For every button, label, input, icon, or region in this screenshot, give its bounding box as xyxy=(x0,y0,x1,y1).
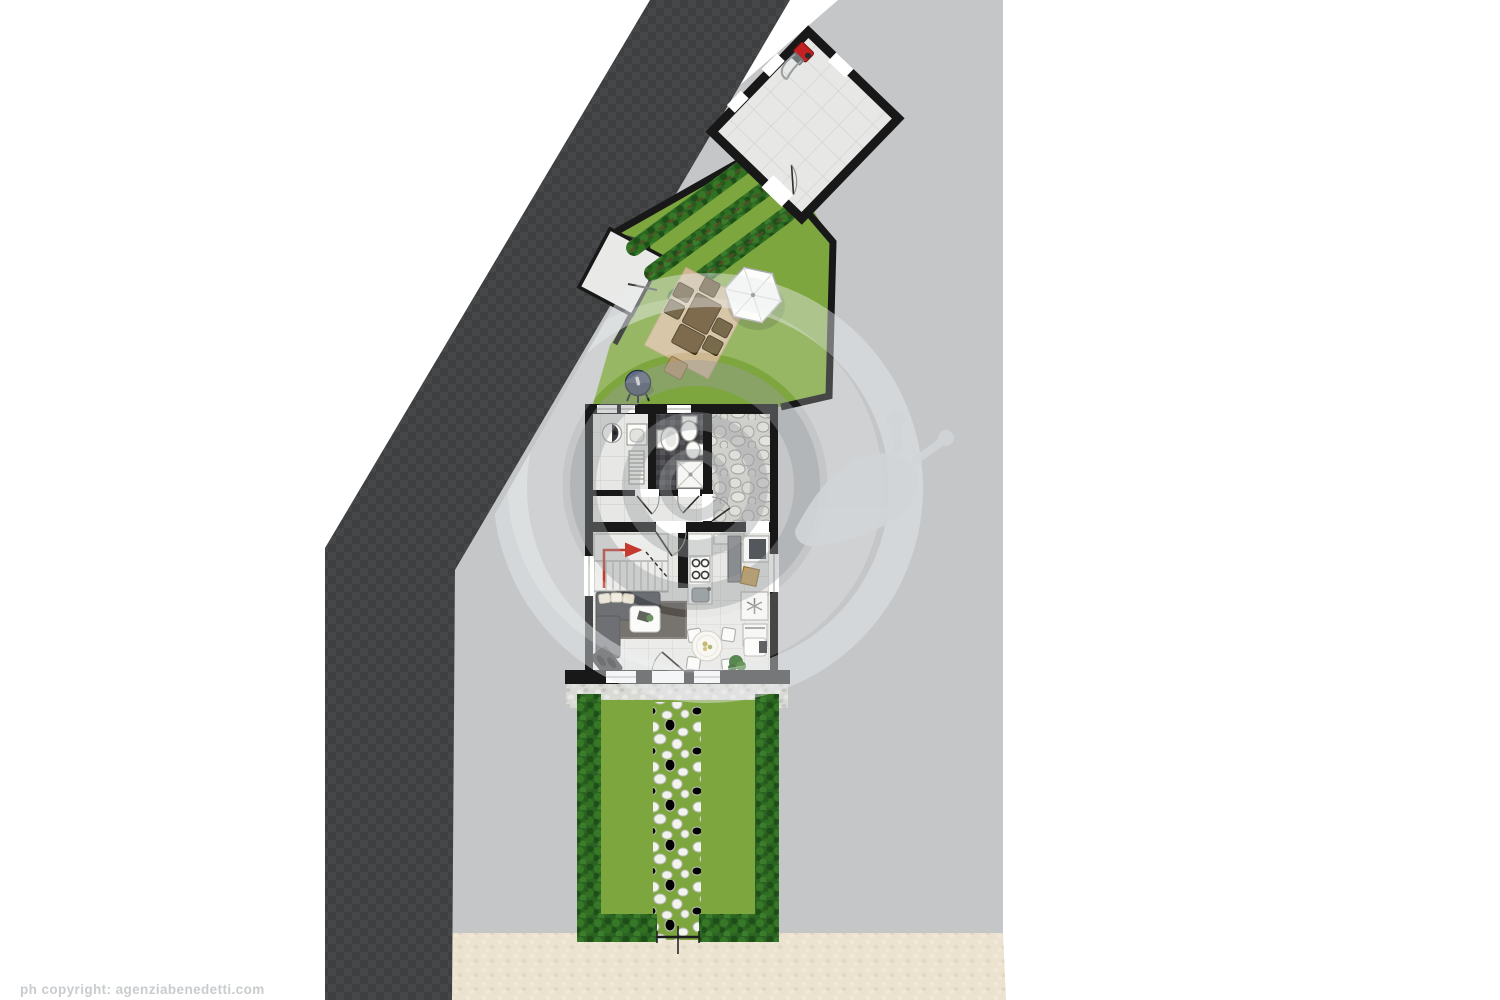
hedge-left xyxy=(577,694,601,942)
sidewalk xyxy=(452,933,1006,1000)
site-plan-image: ph copyright: agenziabenedetti.com xyxy=(0,0,1500,1000)
rear-garden xyxy=(566,684,788,954)
stove-icon xyxy=(690,556,710,582)
stepping-stone-path xyxy=(653,702,701,940)
door-opening xyxy=(678,489,700,497)
copyright-text: ph copyright: agenziabenedetti.com xyxy=(20,982,265,997)
hedge-right xyxy=(755,694,779,942)
